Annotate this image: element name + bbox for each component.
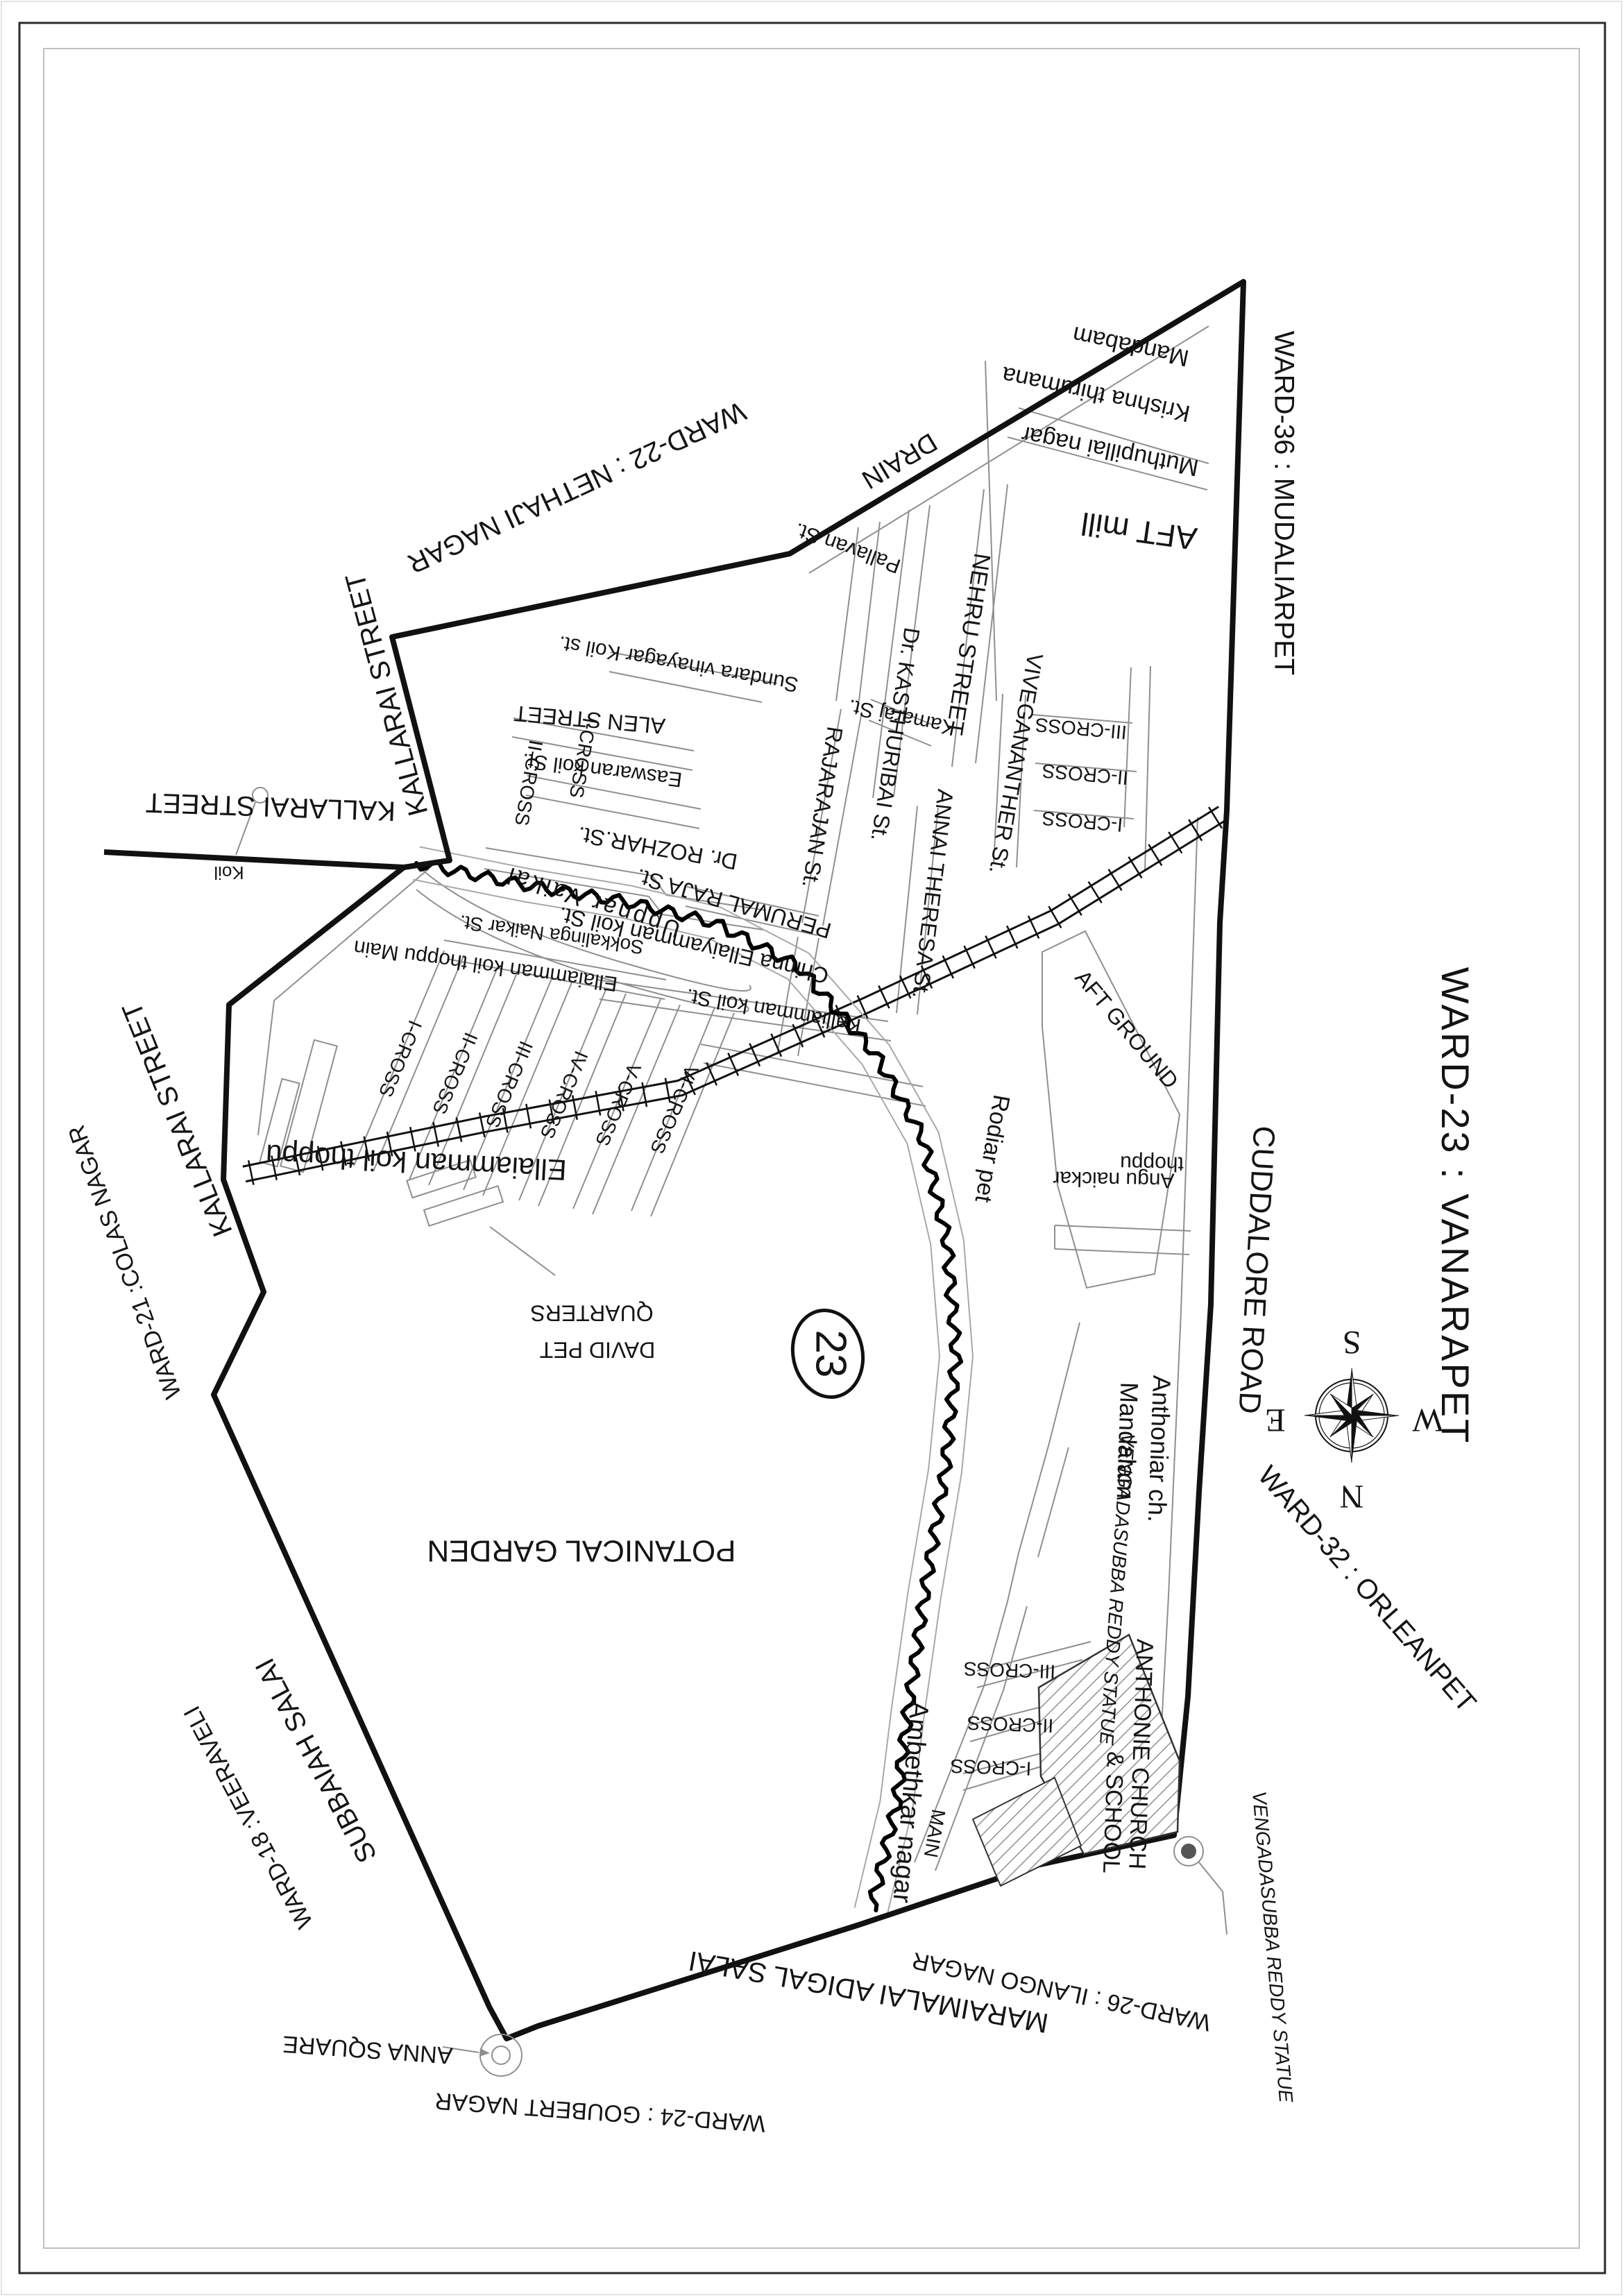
label-kallarai-ne: KALLARAI STREET [340,570,434,819]
label-kalliamman-koil-st: Kalliamman koil St. [684,984,863,1037]
ward-number-badge: 23 [785,1304,871,1404]
label-cross-v3: III-CROSS [1035,714,1128,743]
label-drain: DRAIN [857,427,942,494]
compass-rose [1305,1368,1399,1463]
label-ward22: WARD-22 : NETHAJI NAGAR [403,396,751,579]
label-rajarajan-st: RAJARAJAN St. [797,725,847,890]
ward-number: 23 [807,1330,855,1378]
label-muthupillai-nagar: Muthupillai nagar [1019,421,1200,482]
kallarai-street-spur [104,852,404,867]
label-ward21: WARD-21 :COLAS NAGAR [63,1122,187,1402]
ward-map-canvas: S N E W 23 WARD-23 : VANARAPET WARD-36 :… [0,0,1623,2296]
label-kasthuribai-st: Dr. KASTHURIBAI St. [866,626,924,843]
label-vengadasubba-bottom: VENGADASUBBA REDDY STATUE [1248,1790,1297,2103]
label-kallarai-west: KALLARAI STREET [145,787,396,826]
compass-east: E [1265,1402,1285,1438]
label-potanical-garden: POTANICAL GARDEN [427,1533,736,1567]
label-amb-cross-2: II-CROSS [967,1712,1053,1736]
label-sundara-vinayagar: Sundara vinayagar Koil st. [556,631,800,696]
label-krishna-mandabam: Mandabam [1070,321,1191,372]
label-anthonie-school: & SCHOOL [1098,1751,1128,1874]
label-ward32: WARD-32 : ORLEANPET [1252,1461,1481,1719]
label-ward36: WARD-36 : MUDALIARPET [1268,331,1299,675]
label-anna-square: ANNA SQUARE [282,2030,454,2068]
label-koil: Koil [214,862,244,883]
compass-north: N [1340,1478,1364,1515]
label-pallavan-st: Pallavan St. [792,518,904,578]
label-cross-tl-2: II-CROSS [511,738,547,827]
label-david-pet-quarters-2: QUARTERS [530,1301,653,1326]
label-kallarai-sw: KALLARAI STREET [117,998,239,1241]
labels: WARD-23 : VANARAPET WARD-36 : MUDALIARPE… [63,321,1481,2137]
compass-south: S [1343,1324,1361,1361]
label-amb-cross-3: III-CROSS [963,1658,1055,1683]
page-frame [1,1,1622,2295]
label-fan-cross-1: I-CROSS [375,1017,426,1100]
vengadasubba-statue-marker [1174,1837,1227,1934]
anna-square-marker [443,2034,522,2076]
label-david-pet-quarters-1: DAVID PET [540,1338,656,1363]
label-aft-ground: AFT GROUND [1070,965,1183,1094]
label-rodiar-pet: Rodiar pet [970,1093,1015,1205]
label-maraimalai: MARAIMALAI ADIGAL SALAI [686,1945,1051,2039]
label-cross-v1: I-CROSS [1041,808,1123,836]
label-nehru-street: NEHRU STREET [941,552,996,737]
map-title: WARD-23 : VANARAPET [1434,967,1477,1445]
street-network [258,326,1209,1871]
map-page: S N E W 23 WARD-23 : VANARAPET WARD-36 :… [0,0,1623,2296]
label-anthoniar-ch: Anthoniar ch. [1143,1375,1176,1522]
label-aft-mill: AFT mill [1079,505,1199,557]
label-fan-cross-2: II-CROSS [428,1029,482,1117]
label-angu-naickar: Angu naickar [1053,1167,1175,1192]
label-cuddalore-road: CUDDALORE ROAD [1232,1125,1282,1415]
label-ward24: WARD-24 : GOUBERT NAGAR [434,2087,766,2136]
label-amb-cross-1: I-CROSS [950,1755,1032,1780]
label-cross-v2: II-CROSS [1041,760,1129,789]
label-ambethkar-nagar: Ambethkar nagar [887,1700,933,1904]
